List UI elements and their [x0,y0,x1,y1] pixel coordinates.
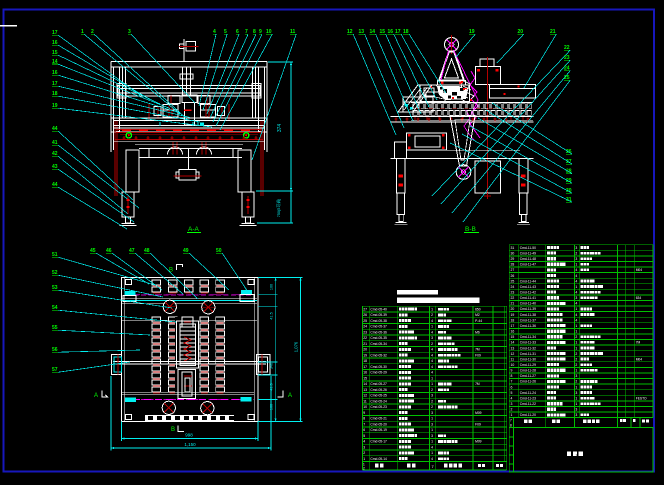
svg-text:Cmd-05-29: Cmd-05-29 [370,371,387,375]
svg-text:17: 17 [395,29,401,35]
svg-text:31: 31 [511,246,515,250]
svg-text:24: 24 [564,66,570,72]
svg-text:42: 42 [52,151,58,157]
svg-text:Cmd-11-27: Cmd-11-27 [520,374,536,378]
svg-text:3: 3 [575,408,577,412]
svg-text:12: 12 [511,352,515,356]
svg-text:1: 1 [363,457,365,461]
svg-text:19: 19 [511,313,515,317]
svg-text:1: 1 [431,428,433,432]
svg-text:10: 10 [511,363,515,367]
svg-text:16: 16 [511,330,515,334]
svg-text:P-44: P-44 [475,319,482,323]
svg-text:7: 7 [511,380,513,384]
svg-text:7M: 7M [636,341,641,345]
svg-text:57: 57 [52,367,58,373]
svg-text:FESTO: FESTO [636,396,647,400]
svg-text:22: 22 [564,45,570,51]
svg-text:4: 4 [431,365,433,369]
svg-text:Cmd-11-32: Cmd-11-32 [520,346,536,350]
svg-text:3: 3 [575,296,577,300]
svg-text:1: 1 [431,417,433,421]
svg-text:4: 4 [431,371,433,375]
svg-text:Cmd-11-48: Cmd-11-48 [520,257,536,261]
svg-text:26: 26 [511,274,515,278]
svg-text:4: 4 [431,445,433,449]
svg-text:Cmd-11-39: Cmd-11-39 [520,307,536,311]
svg-text:B: B [171,427,175,433]
svg-text:12: 12 [347,29,353,35]
svg-text:1: 1 [431,382,433,386]
svg-text:2: 2 [363,467,365,471]
svg-text:Cmd-05-35: Cmd-05-35 [370,336,387,340]
svg-text:Cmd-05-19: Cmd-05-19 [370,428,387,432]
svg-text:Cmd-05-17: Cmd-05-17 [370,440,387,444]
svg-text:54: 54 [52,305,58,311]
svg-text:41: 41 [52,140,58,146]
svg-text:2: 2 [575,357,577,361]
svg-text:13: 13 [359,29,365,35]
svg-text:47: 47 [129,248,135,254]
svg-text:Cmd-05-30: Cmd-05-30 [370,365,387,369]
svg-text:650: 650 [475,307,481,311]
svg-text:F09: F09 [475,353,481,357]
svg-text:Cmd-05-25: Cmd-05-25 [370,394,387,398]
svg-text:3: 3 [575,257,577,261]
svg-text:Cmd-11-31: Cmd-11-31 [520,352,536,356]
svg-text:27: 27 [363,307,367,311]
svg-text:24: 24 [363,325,367,329]
svg-text:55: 55 [52,325,58,331]
svg-text:Cmd-11-47: Cmd-11-47 [520,263,536,267]
svg-text:20: 20 [511,307,515,311]
svg-text:Cmd-11-26: Cmd-11-26 [520,380,536,384]
svg-text:9: 9 [363,411,365,415]
svg-text:29: 29 [511,257,515,261]
svg-text:10: 10 [266,29,272,35]
svg-text:18: 18 [511,318,515,322]
svg-text:3: 3 [431,411,433,415]
svg-text:21: 21 [511,302,515,306]
svg-text:44: 44 [52,126,58,132]
svg-text:3: 3 [575,374,577,378]
svg-text:3: 3 [431,394,433,398]
svg-text:16: 16 [52,40,58,46]
svg-text:20: 20 [518,29,524,35]
svg-text:17: 17 [52,30,58,36]
svg-text:23: 23 [511,290,515,294]
svg-text:4: 4 [431,330,433,334]
svg-text:8: 8 [511,374,513,378]
svg-text:Cmd-05-20: Cmd-05-20 [370,422,387,426]
svg-text:4: 4 [431,353,433,357]
svg-text:21: 21 [363,342,367,346]
svg-text:Cmd-05-27: Cmd-05-27 [370,382,387,386]
svg-text:Cmd-11-42: Cmd-11-42 [520,290,536,294]
svg-text:M09: M09 [475,440,482,444]
svg-text:Cmd-05-26: Cmd-05-26 [370,388,387,392]
svg-text:25: 25 [363,319,367,323]
svg-text:1: 1 [431,325,433,329]
svg-text:26: 26 [363,313,367,317]
svg-text:4: 4 [431,457,433,461]
svg-text:46: 46 [106,248,112,254]
svg-text:3: 3 [431,336,433,340]
svg-text:Cmd-11-28: Cmd-11-28 [520,369,536,373]
svg-text:3: 3 [575,246,577,250]
svg-text:A: A [94,393,98,399]
svg-text:30: 30 [566,188,572,194]
svg-text:4: 4 [431,319,433,323]
svg-text:3: 3 [575,413,577,417]
svg-text:634: 634 [636,296,642,300]
svg-text:1: 1 [575,341,577,345]
svg-text:2: 2 [431,399,433,403]
svg-text:1: 1 [575,385,577,389]
svg-text:F09: F09 [475,422,481,426]
svg-text:17: 17 [52,81,58,87]
svg-text:3: 3 [128,29,131,35]
svg-text:Cmd-05-40: Cmd-05-40 [370,307,387,311]
svg-text:Cmd-11-36: Cmd-11-36 [520,324,536,328]
svg-text:M6: M6 [475,330,480,334]
svg-text:2: 2 [431,405,433,409]
svg-text:8: 8 [510,424,512,428]
svg-text:1: 1 [575,402,577,406]
svg-text:1: 1 [575,369,577,373]
svg-text:Cmd-05-37: Cmd-05-37 [370,325,387,329]
svg-text:1: 1 [511,413,513,417]
svg-text:50: 50 [216,248,222,254]
svg-text:1: 1 [431,376,433,380]
svg-text:750(5可调): 750(5可调) [276,198,281,217]
svg-text:7: 7 [510,419,512,423]
svg-text:3: 3 [575,391,577,395]
svg-text:1: 1 [431,440,433,444]
svg-text:1: 1 [431,451,433,455]
svg-text:Cmd-05-23: Cmd-05-23 [370,405,387,409]
svg-text:41.5: 41.5 [270,383,274,390]
svg-text:23: 23 [564,55,570,61]
svg-text:30: 30 [511,251,515,255]
svg-text:4: 4 [575,318,577,322]
svg-text:Cmd-11-49: Cmd-11-49 [520,251,536,255]
svg-text:2: 2 [575,380,577,384]
svg-text:Cmd-05-21: Cmd-05-21 [370,417,387,421]
svg-text:1: 1 [575,396,577,400]
svg-text:5: 5 [511,391,513,395]
svg-text:Cmd-11-50: Cmd-11-50 [520,246,536,250]
svg-text:7: 7 [245,29,248,35]
svg-text:6: 6 [511,385,513,389]
svg-text:1,150: 1,150 [184,442,196,447]
svg-text:4: 4 [213,29,216,35]
svg-text:Cmd-11-43: Cmd-11-43 [520,285,536,289]
svg-text:9: 9 [511,369,513,373]
svg-text:3: 3 [511,402,513,406]
svg-text:Cmd-11-40: Cmd-11-40 [520,302,536,306]
svg-text:15: 15 [380,29,386,35]
svg-text:4: 4 [575,290,577,294]
svg-text:1: 1 [575,330,577,334]
svg-text:2: 2 [363,451,365,455]
svg-text:10: 10 [363,405,367,409]
svg-text:18: 18 [403,29,409,35]
svg-text:14: 14 [370,29,376,35]
svg-text:M2: M2 [475,313,480,317]
svg-text:100: 100 [270,404,274,410]
svg-text:M09: M09 [475,411,482,415]
svg-text:2: 2 [91,29,94,35]
svg-text:16: 16 [52,70,58,76]
svg-text:4: 4 [575,313,577,317]
svg-text:4: 4 [511,396,513,400]
svg-text:11: 11 [290,29,296,35]
svg-text:Cmd-11-22: Cmd-11-22 [520,402,536,406]
svg-text:Cmd-11-33: Cmd-11-33 [520,341,536,345]
svg-text:3: 3 [431,422,433,426]
svg-text:3: 3 [363,445,365,449]
svg-text:1: 1 [575,263,577,267]
svg-text:6: 6 [236,29,239,35]
svg-text:Cmd-05-38: Cmd-05-38 [370,319,387,323]
svg-text:56: 56 [52,347,58,353]
svg-text:Cmd-05-34: Cmd-05-34 [370,342,387,346]
svg-text:25: 25 [564,75,570,81]
svg-text:23: 23 [363,330,367,334]
svg-text:Cmd-11-30: Cmd-11-30 [520,357,536,361]
svg-text:Cmd-11-38: Cmd-11-38 [520,313,536,317]
svg-text:Cmd-05-32: Cmd-05-32 [370,353,387,357]
svg-text:4: 4 [575,268,577,272]
svg-text:12: 12 [363,394,367,398]
svg-text:Cmd-11-37: Cmd-11-37 [520,318,536,322]
svg-text:1: 1 [575,307,577,311]
svg-text:Cmd-11-34: Cmd-11-34 [520,335,536,339]
svg-text:20: 20 [363,348,367,352]
svg-text:15: 15 [52,50,58,56]
svg-text:16: 16 [363,371,367,375]
svg-text:24: 24 [511,285,515,289]
svg-text:28: 28 [511,263,515,267]
svg-text:17: 17 [363,365,367,369]
svg-text:1: 1 [575,285,577,289]
svg-text:Cmd-11-20: Cmd-11-20 [520,413,536,417]
svg-text:41.5: 41.5 [270,312,274,319]
svg-text:2: 2 [431,342,433,346]
svg-text:48: 48 [144,248,150,254]
svg-text:4: 4 [363,440,365,444]
svg-text:2: 2 [575,251,577,255]
svg-text:11: 11 [363,399,367,403]
svg-text:27: 27 [511,268,515,272]
svg-text:Cmd-05-24: Cmd-05-24 [370,399,387,403]
svg-text:22: 22 [363,336,367,340]
svg-text:19: 19 [363,353,367,357]
svg-text:16: 16 [388,29,394,35]
svg-text:11: 11 [511,357,515,361]
svg-text:2: 2 [575,363,577,367]
svg-text:Cmd-05-36: Cmd-05-36 [370,330,387,334]
svg-text:7: 7 [363,422,365,426]
svg-text:52: 52 [52,270,58,276]
svg-text:998: 998 [185,433,193,438]
svg-text:1: 1 [81,29,84,35]
svg-text:9: 9 [259,29,262,35]
svg-text:346: 346 [270,363,274,369]
svg-text:4: 4 [431,348,433,352]
svg-text:44: 44 [52,182,58,188]
svg-text:53: 53 [52,285,58,291]
svg-text:6: 6 [363,428,365,432]
svg-text:M04: M04 [636,357,643,361]
svg-text:51: 51 [52,252,58,258]
svg-text:14: 14 [363,382,367,386]
svg-text:Cmd-11-24: Cmd-11-24 [520,391,536,395]
svg-text:M04: M04 [636,268,643,272]
svg-text:22: 22 [511,296,515,300]
svg-text:2: 2 [575,335,577,339]
svg-text:Cmd-11-44: Cmd-11-44 [520,279,536,283]
svg-text:17: 17 [511,324,515,328]
svg-text:A-A: A-A [188,226,200,233]
svg-text:13: 13 [511,346,515,350]
svg-text:15: 15 [511,335,515,339]
svg-text:25: 25 [511,279,515,283]
svg-text:2: 2 [511,408,513,412]
svg-text:8: 8 [253,29,256,35]
svg-text:4: 4 [575,302,577,306]
svg-text:8: 8 [363,417,365,421]
svg-text:49: 49 [183,248,189,254]
svg-text:19: 19 [469,29,475,35]
svg-text:18: 18 [363,359,367,363]
svg-text:14: 14 [52,59,58,65]
svg-text:Cmd-11-41: Cmd-11-41 [520,296,536,300]
svg-text:2: 2 [575,352,577,356]
svg-text:Cmd-05-39: Cmd-05-39 [370,313,387,317]
svg-text:2: 2 [431,313,433,317]
svg-text:B-B: B-B [465,226,476,233]
svg-text:7M: 7M [475,348,480,352]
svg-text:3: 3 [431,434,433,438]
svg-text:4: 4 [431,359,433,363]
svg-text:4: 4 [575,279,577,283]
svg-text:100: 100 [270,284,274,290]
svg-text:15: 15 [363,376,367,380]
svg-text:A: A [288,393,292,399]
svg-text:4: 4 [575,274,577,278]
svg-text:Cmd-11-29: Cmd-11-29 [520,363,536,367]
svg-text:13: 13 [363,388,367,392]
svg-text:19: 19 [52,103,58,109]
svg-text:5: 5 [224,29,227,35]
svg-text:5: 5 [363,434,365,438]
svg-text:2: 2 [431,388,433,392]
svg-text:1,076: 1,076 [294,341,299,352]
svg-text:B: B [169,268,173,274]
svg-text:1: 1 [575,346,577,350]
svg-text:45: 45 [90,248,96,254]
svg-text:21: 21 [550,29,556,35]
svg-text:14: 14 [511,341,515,345]
svg-text:18: 18 [52,91,58,97]
svg-text:7M: 7M [475,382,480,386]
svg-text:1: 1 [431,307,433,311]
svg-text:Cmd-11-23: Cmd-11-23 [520,396,536,400]
svg-text:43: 43 [52,164,58,170]
svg-text:1: 1 [575,324,577,328]
svg-text:Cmd-05-14: Cmd-05-14 [370,457,387,461]
svg-text:374: 374 [277,124,283,133]
